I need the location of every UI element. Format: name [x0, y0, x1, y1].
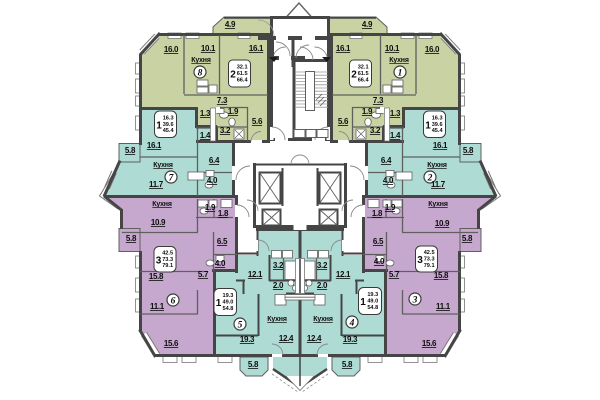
- svg-text:1: 1: [216, 298, 222, 309]
- svg-text:39.6: 39.6: [163, 122, 174, 128]
- svg-text:15.8: 15.8: [434, 271, 449, 280]
- svg-text:4.0: 4.0: [374, 257, 385, 266]
- svg-text:4.9: 4.9: [362, 20, 373, 29]
- svg-text:6.5: 6.5: [373, 237, 384, 246]
- svg-text:54.8: 54.8: [223, 306, 234, 312]
- svg-text:1: 1: [156, 120, 162, 131]
- svg-text:11.1: 11.1: [150, 302, 165, 311]
- svg-text:5.8: 5.8: [126, 234, 137, 243]
- svg-text:73.3: 73.3: [162, 257, 173, 263]
- svg-text:10.1: 10.1: [201, 44, 216, 53]
- svg-text:1.3: 1.3: [390, 109, 401, 118]
- svg-text:12.4: 12.4: [307, 334, 322, 343]
- svg-text:3.2: 3.2: [317, 261, 328, 270]
- svg-text:10.1: 10.1: [385, 44, 400, 53]
- svg-text:1.4: 1.4: [200, 131, 211, 140]
- svg-text:1: 1: [360, 297, 366, 308]
- svg-text:61.5: 61.5: [358, 71, 369, 77]
- svg-text:16.1: 16.1: [249, 44, 264, 53]
- svg-text:79.1: 79.1: [424, 263, 435, 269]
- svg-text:66.4: 66.4: [237, 77, 249, 83]
- svg-text:10.9: 10.9: [435, 219, 450, 228]
- svg-text:16.0: 16.0: [425, 45, 440, 54]
- svg-text:2: 2: [351, 70, 357, 81]
- svg-text:16.3: 16.3: [432, 115, 443, 121]
- svg-text:49.0: 49.0: [367, 299, 378, 305]
- svg-text:Кухня: Кухня: [389, 57, 409, 64]
- svg-text:3.2: 3.2: [273, 261, 284, 270]
- svg-text:19.3: 19.3: [240, 335, 255, 344]
- svg-text:3: 3: [156, 255, 162, 266]
- svg-text:19.3: 19.3: [367, 292, 378, 298]
- svg-text:5.7: 5.7: [389, 270, 400, 279]
- svg-text:15.6: 15.6: [422, 339, 437, 348]
- svg-text:4: 4: [349, 318, 355, 328]
- svg-text:16.3: 16.3: [163, 115, 174, 121]
- svg-text:16.1: 16.1: [336, 44, 351, 53]
- svg-text:5.8: 5.8: [463, 146, 474, 155]
- svg-text:12.1: 12.1: [248, 270, 263, 279]
- svg-text:2.0: 2.0: [273, 281, 284, 290]
- svg-text:1.9: 1.9: [385, 203, 396, 212]
- svg-text:16.1: 16.1: [147, 141, 162, 150]
- svg-text:6.4: 6.4: [209, 156, 220, 165]
- svg-text:61.5: 61.5: [237, 71, 248, 77]
- svg-text:5.8: 5.8: [342, 360, 353, 369]
- svg-text:Кухня: Кухня: [191, 57, 211, 64]
- svg-text:6.4: 6.4: [381, 156, 392, 165]
- svg-text:12.4: 12.4: [279, 334, 294, 343]
- svg-text:11.7: 11.7: [149, 180, 164, 189]
- svg-text:5: 5: [238, 320, 243, 330]
- svg-text:73.3: 73.3: [424, 257, 435, 263]
- svg-text:Кухня: Кухня: [428, 201, 448, 208]
- svg-text:5.8: 5.8: [462, 234, 473, 243]
- svg-text:2: 2: [230, 70, 236, 81]
- svg-text:66.4: 66.4: [358, 77, 370, 83]
- svg-text:4.0: 4.0: [207, 176, 218, 185]
- svg-text:5.8: 5.8: [248, 360, 259, 369]
- svg-text:42.5: 42.5: [424, 250, 435, 256]
- svg-text:32.1: 32.1: [358, 65, 369, 71]
- svg-text:4.0: 4.0: [383, 176, 394, 185]
- svg-text:3.2: 3.2: [220, 126, 231, 135]
- svg-text:1.8: 1.8: [218, 209, 229, 218]
- svg-text:7.3: 7.3: [373, 96, 384, 105]
- svg-text:1.9: 1.9: [228, 107, 239, 116]
- svg-text:19.3: 19.3: [343, 335, 358, 344]
- svg-text:54.8: 54.8: [367, 305, 378, 311]
- svg-text:2.0: 2.0: [317, 281, 328, 290]
- svg-text:5.8: 5.8: [125, 146, 136, 155]
- svg-text:79.1: 79.1: [162, 263, 173, 269]
- svg-text:45.4: 45.4: [163, 128, 175, 134]
- svg-text:5.6: 5.6: [338, 117, 349, 126]
- svg-text:5.6: 5.6: [252, 117, 263, 126]
- svg-text:12.1: 12.1: [336, 270, 351, 279]
- svg-text:1.4: 1.4: [390, 131, 401, 140]
- svg-text:1.8: 1.8: [372, 209, 383, 218]
- svg-text:5.7: 5.7: [198, 270, 209, 279]
- svg-text:3.2: 3.2: [370, 126, 381, 135]
- svg-text:15.6: 15.6: [164, 339, 179, 348]
- svg-text:11.1: 11.1: [436, 302, 451, 311]
- svg-text:3: 3: [412, 295, 418, 305]
- svg-text:8: 8: [198, 68, 203, 78]
- svg-text:1.3: 1.3: [200, 109, 211, 118]
- svg-text:16.0: 16.0: [164, 45, 179, 54]
- svg-text:16.1: 16.1: [433, 141, 448, 150]
- svg-text:1.9: 1.9: [205, 203, 216, 212]
- svg-text:1: 1: [425, 120, 431, 131]
- svg-text:1.9: 1.9: [362, 107, 373, 116]
- svg-text:4.0: 4.0: [215, 259, 226, 268]
- svg-text:15.8: 15.8: [149, 272, 164, 281]
- svg-text:Кухня: Кухня: [152, 201, 172, 208]
- svg-text:10.9: 10.9: [151, 218, 166, 227]
- svg-text:45.4: 45.4: [432, 128, 444, 134]
- svg-text:1: 1: [398, 68, 403, 78]
- svg-text:Кухня: Кухня: [153, 162, 173, 169]
- svg-text:3: 3: [417, 255, 423, 266]
- svg-text:32.1: 32.1: [237, 65, 248, 71]
- svg-text:11.7: 11.7: [431, 180, 446, 189]
- svg-text:Кухня: Кухня: [427, 162, 447, 169]
- svg-text:19.3: 19.3: [223, 293, 234, 299]
- svg-text:6.5: 6.5: [217, 237, 228, 246]
- svg-text:6: 6: [171, 296, 176, 306]
- svg-text:42.5: 42.5: [162, 250, 173, 256]
- svg-text:49.0: 49.0: [223, 300, 234, 306]
- svg-text:4.9: 4.9: [225, 20, 236, 29]
- svg-text:7.3: 7.3: [217, 96, 228, 105]
- svg-text:Кухня: Кухня: [267, 316, 287, 323]
- svg-text:39.6: 39.6: [432, 122, 443, 128]
- svg-text:Кухня: Кухня: [313, 316, 333, 323]
